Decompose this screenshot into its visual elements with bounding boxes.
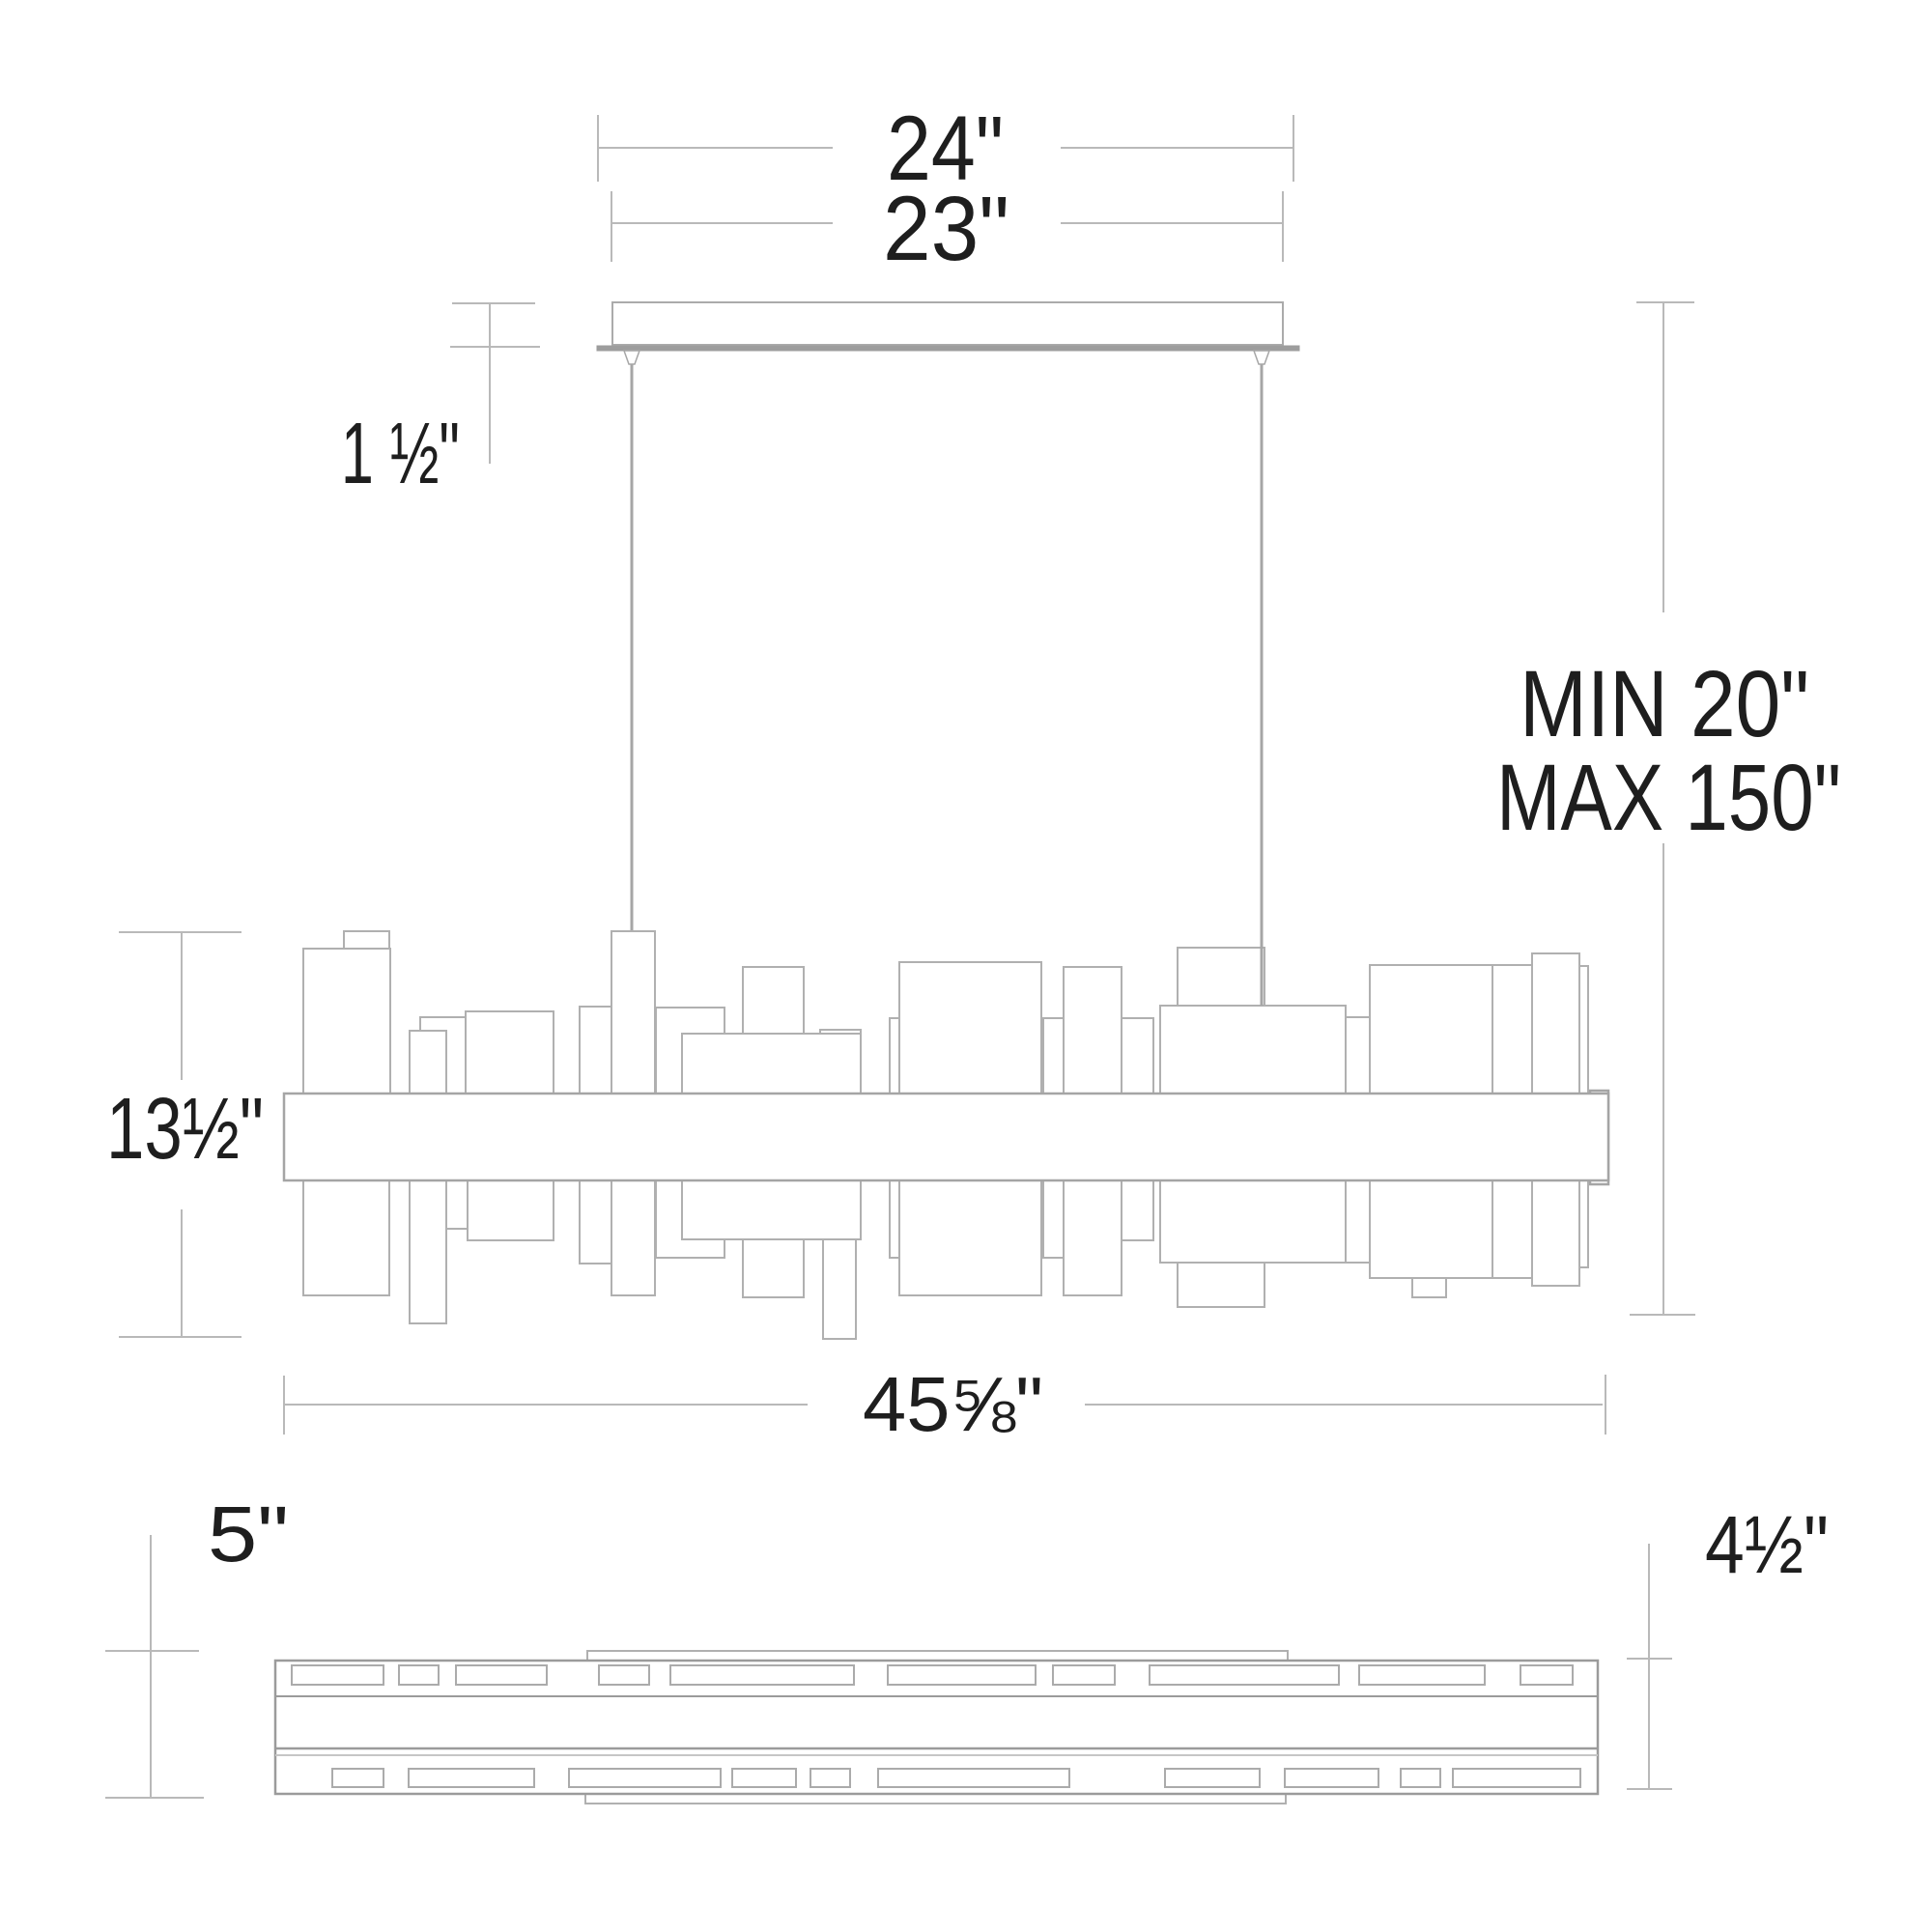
svg-text:MIN 20": MIN 20" xyxy=(1520,651,1809,756)
svg-text:45⅝": 45⅝" xyxy=(863,1361,1043,1447)
svg-text:4½": 4½" xyxy=(1705,1499,1829,1590)
svg-text:23": 23" xyxy=(883,178,1009,280)
svg-text:MAX 150": MAX 150" xyxy=(1496,745,1841,850)
svg-text:1 ½": 1 ½" xyxy=(341,406,460,502)
svg-text:13½": 13½" xyxy=(106,1081,264,1178)
svg-text:5": 5" xyxy=(208,1491,289,1578)
